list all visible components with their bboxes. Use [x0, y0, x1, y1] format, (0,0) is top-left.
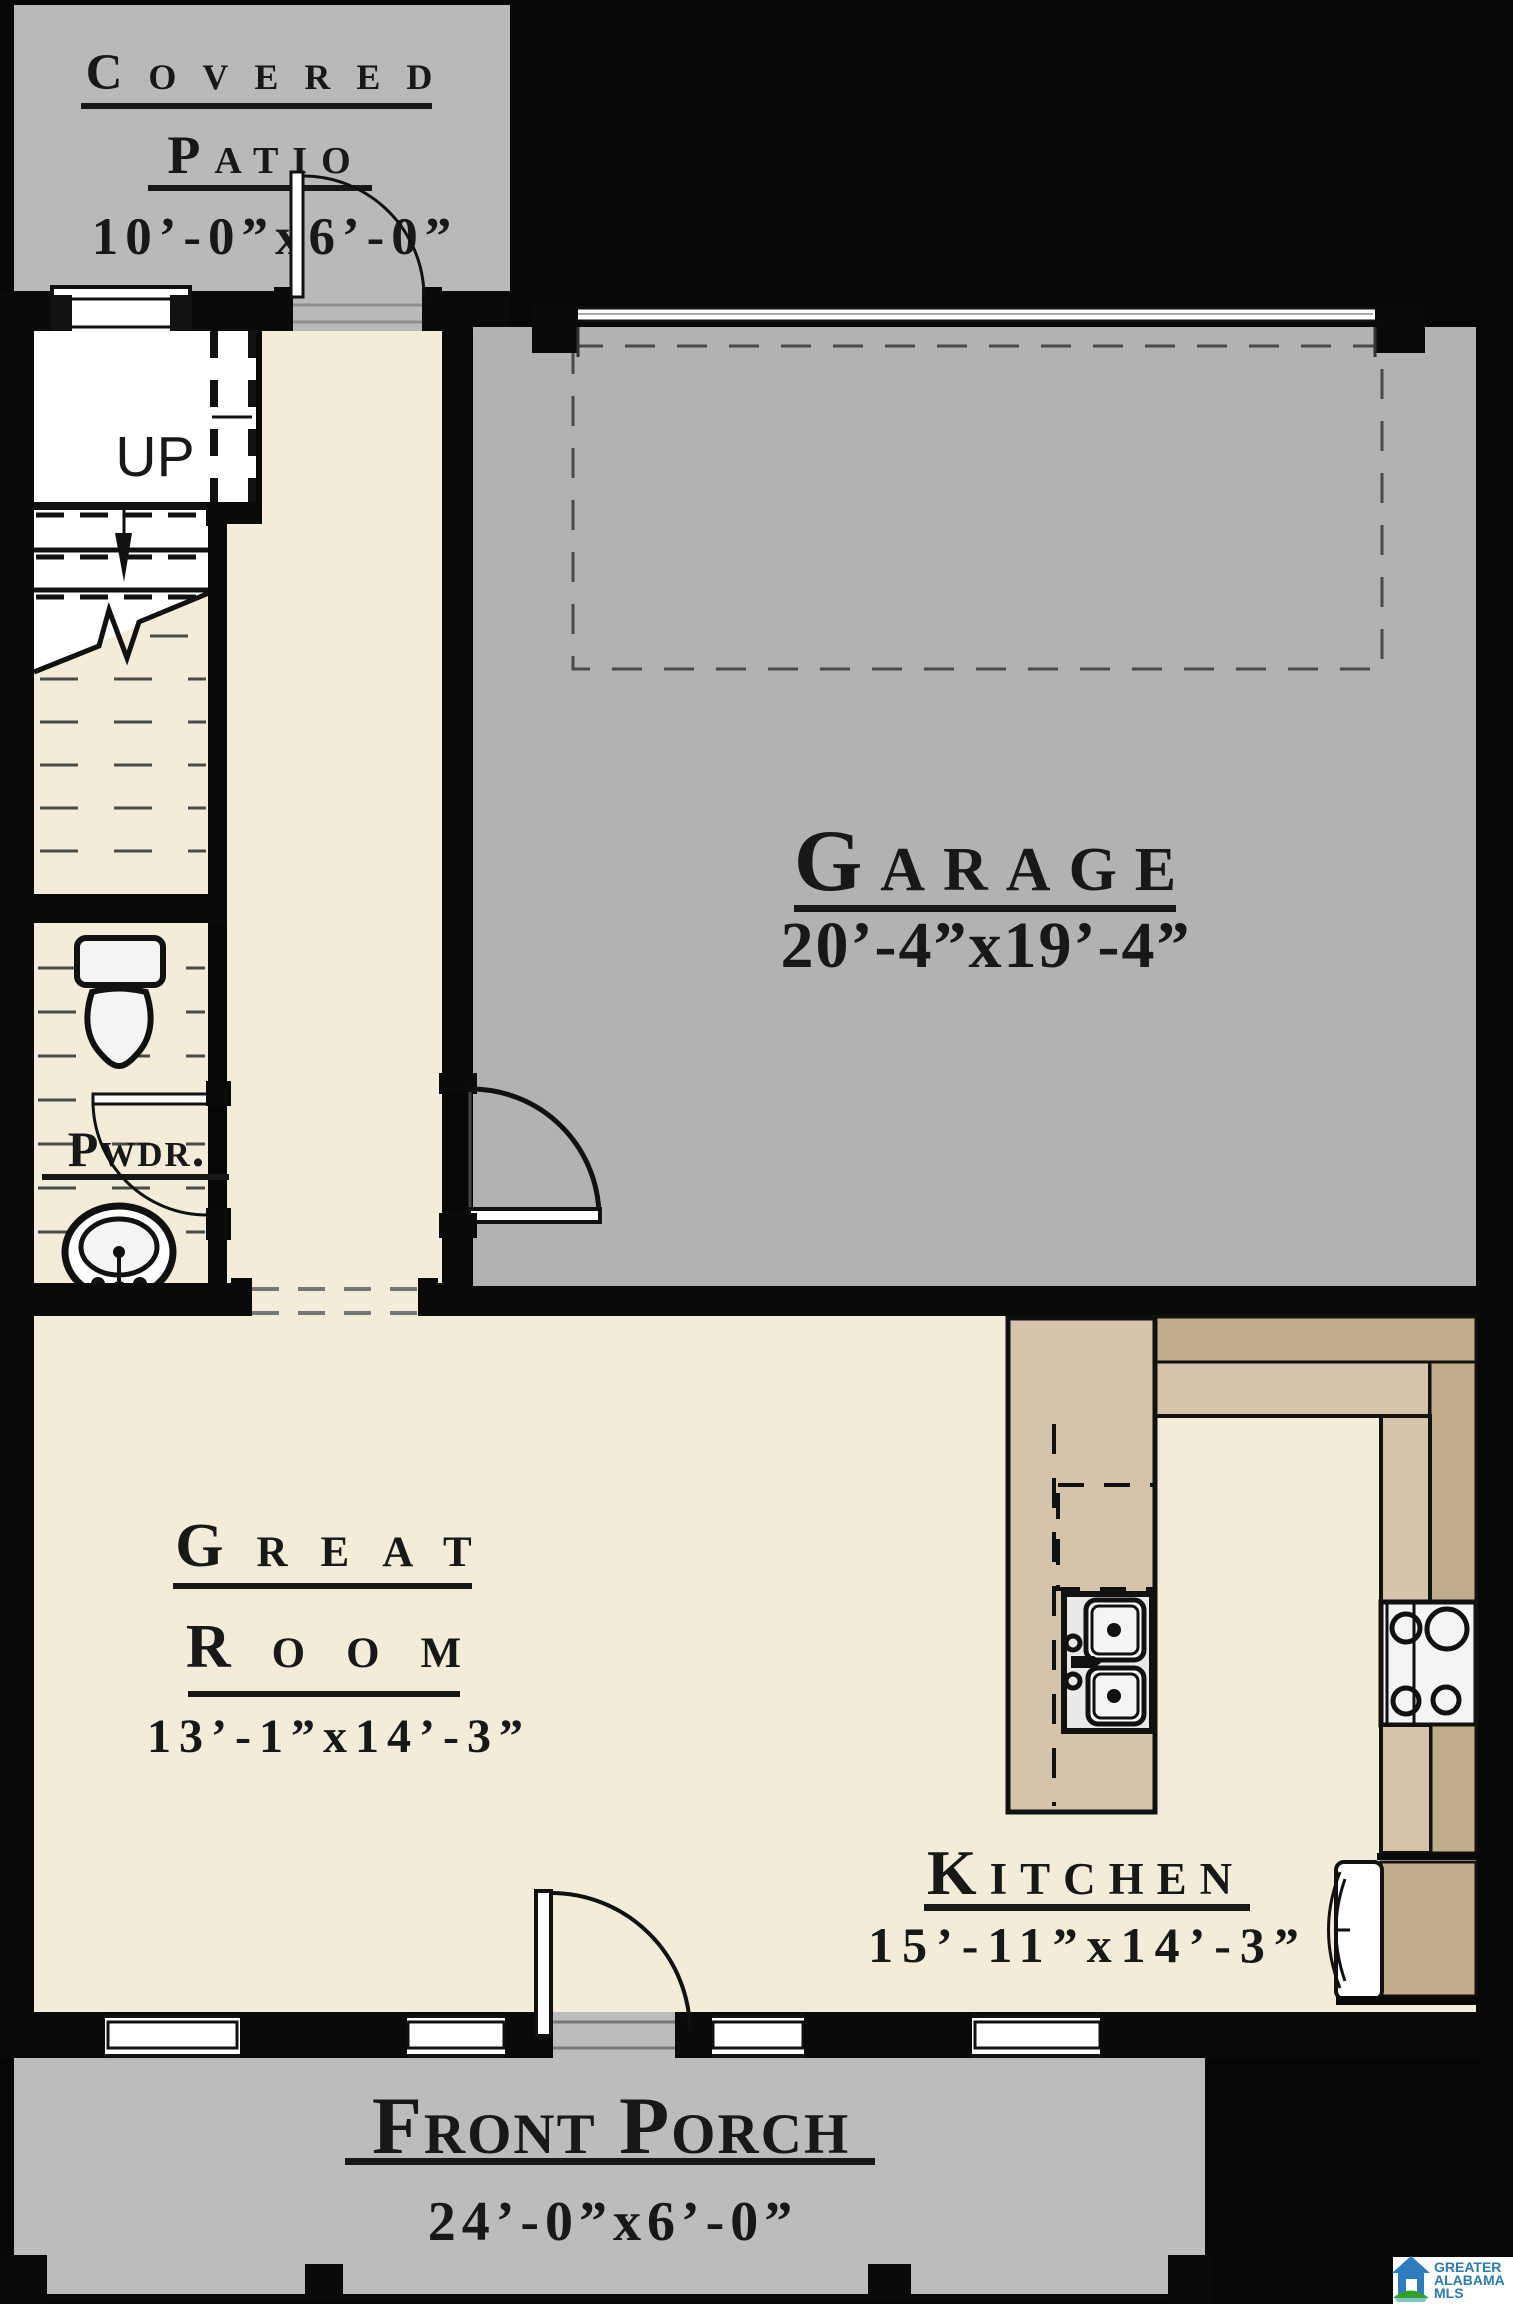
svg-text:Front Porch: Front Porch	[372, 2080, 850, 2171]
svg-text:Garage: Garage	[794, 813, 1194, 910]
svg-text:20’-4”x19’-4”: 20’-4”x19’-4”	[781, 909, 1192, 982]
svg-text:10’-0”x6’-0”: 10’-0”x6’-0”	[92, 208, 459, 266]
svg-text:Kitchen: Kitchen	[927, 1837, 1245, 1908]
svg-text:Pwdr.: Pwdr.	[68, 1121, 207, 1177]
svg-text:15’-11”x14’-3”: 15’-11”x14’-3”	[868, 1917, 1308, 1973]
svg-text:Covered: Covered	[86, 45, 459, 101]
svg-text:13’-1”x14’-3”: 13’-1”x14’-3”	[147, 1710, 531, 1763]
svg-text:UP: UP	[115, 425, 194, 489]
svg-text:24’-0”x6’-0”: 24’-0”x6’-0”	[428, 2191, 799, 2253]
svg-text:Room: Room	[186, 1613, 502, 1681]
svg-text:MLS: MLS	[1434, 2285, 1464, 2301]
svg-text:Patio: Patio	[167, 125, 364, 185]
svg-text:Great: Great	[175, 1512, 505, 1580]
